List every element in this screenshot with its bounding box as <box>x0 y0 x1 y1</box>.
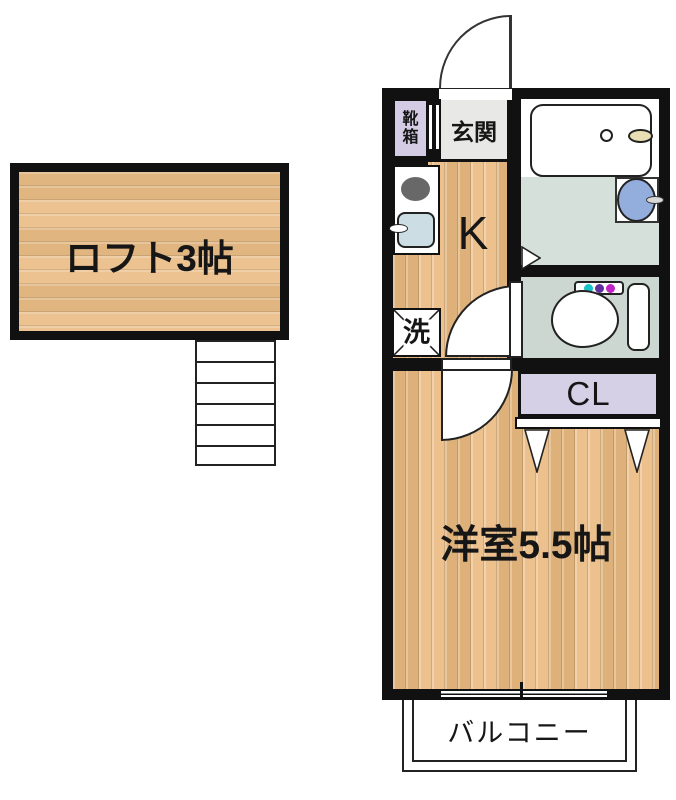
wall-kitchen-room-left <box>382 358 442 371</box>
stove-burner-icon <box>401 177 430 201</box>
bathtub-drain-icon <box>600 129 613 142</box>
shoebox-cabinet: 靴箱 <box>393 99 428 158</box>
washer-label: 洗 <box>403 319 430 346</box>
entrance-door-leaf <box>509 15 512 88</box>
bathtub-faucet-icon <box>628 129 653 143</box>
closet-door-marker-icon <box>624 429 650 473</box>
closet-label: CL <box>566 375 610 413</box>
western-room-label: 洋室5.5帖 <box>393 514 659 570</box>
kitchen-faucet-icon <box>389 224 408 233</box>
wall-toilet-room <box>507 358 659 371</box>
closet: CL <box>518 371 659 417</box>
balcony: バルコニー <box>412 700 627 762</box>
entrance-label: 玄関 <box>441 113 507 147</box>
closet-door-marker-icon <box>524 429 550 473</box>
entrance-door-swing-icon <box>439 15 511 88</box>
toilet-bowl-icon <box>551 290 619 348</box>
wall-bath-toilet <box>521 265 659 277</box>
bathroom-door-marker-icon <box>521 246 541 270</box>
room-door-leaf <box>441 358 512 371</box>
loft-ladder-icon <box>195 340 276 466</box>
sliding-window-icon <box>441 689 607 700</box>
washbasin-faucet-icon <box>646 196 664 204</box>
closet-door-track <box>515 417 662 429</box>
entrance-jamb-marks <box>428 99 441 162</box>
kitchen-label: K <box>437 206 509 260</box>
entrance-threshold <box>439 88 512 100</box>
shoebox-label: 靴箱 <box>403 111 419 147</box>
loft-label: ロフト3帖 <box>19 228 280 282</box>
balcony-label: バルコニー <box>447 711 591 750</box>
toilet-button-icon <box>606 284 615 293</box>
floor-plan: ロフト3帖 靴箱 洗 <box>0 0 676 800</box>
washing-machine-space: 洗 <box>392 308 441 357</box>
toilet-tank-icon <box>627 283 650 351</box>
toilet-door-leaf <box>509 281 523 358</box>
